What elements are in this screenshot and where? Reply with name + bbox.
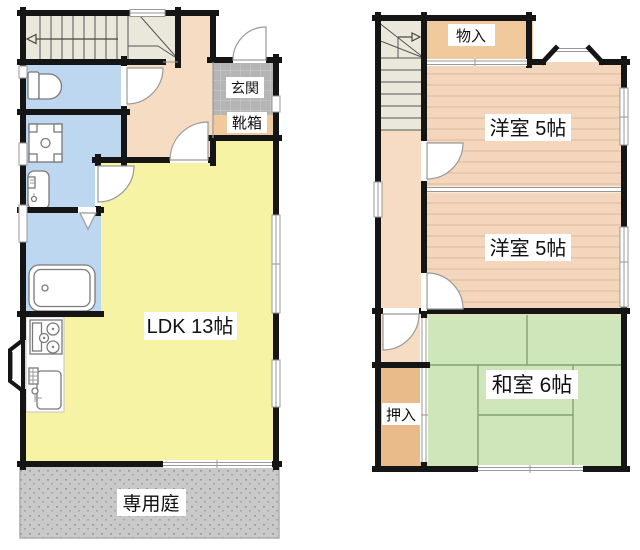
bathroom-window	[19, 205, 27, 242]
ldk-label-text: LDK 13帖	[147, 315, 234, 338]
genkan-side-window	[272, 96, 280, 112]
washroom-window	[19, 143, 27, 165]
floor-plan-image: 玄関 靴箱 LDK 13帖 専用庭	[0, 0, 640, 550]
toilet-fixture	[28, 72, 61, 99]
label-garden: 専用庭	[117, 489, 186, 516]
japanese-room-doorway	[420, 318, 428, 362]
western-upper-label-text: 洋室 5帖	[490, 117, 567, 140]
bathtub-fixture	[29, 265, 95, 311]
label-closet: 押入	[382, 403, 421, 425]
closet-label-text: 押入	[386, 407, 416, 424]
label-genkan: 玄関	[226, 77, 264, 98]
ldk-patio-sliding-window	[163, 460, 272, 468]
toilet-window	[19, 66, 27, 78]
front-door	[233, 27, 266, 63]
storage-sliding-door	[427, 59, 527, 66]
floor-plan-svg: 玄関 靴箱 LDK 13帖 専用庭	[0, 0, 640, 550]
label-ldk: LDK 13帖	[144, 312, 237, 340]
kitchen-counter	[26, 317, 64, 412]
shoebox-label-text: 靴箱	[232, 115, 262, 132]
washbasin-fixture	[28, 171, 49, 209]
western-rooms-partition	[427, 187, 621, 193]
closet-fusuma-doors	[420, 368, 428, 462]
floor-1-plan: 玄関 靴箱 LDK 13帖 専用庭	[10, 10, 280, 539]
stove-fixture	[30, 320, 62, 354]
label-japanese-room: 和室 6帖	[486, 370, 578, 399]
bay-window-1f	[10, 340, 23, 391]
western-lower-label-text: 洋室 5帖	[490, 237, 567, 260]
stairs-floor-2f	[375, 15, 427, 135]
stairs-floor-1f	[20, 10, 178, 62]
japanese-room-sliding-window	[478, 465, 583, 473]
storage-label-text: 物入	[456, 28, 486, 45]
genkan-label-text: 玄関	[231, 80, 259, 96]
garden-label-text: 専用庭	[122, 493, 179, 515]
label-shoebox: 靴箱	[227, 112, 267, 133]
label-western-room-lower: 洋室 5帖	[485, 234, 571, 261]
hallway-upper-floor	[175, 10, 216, 62]
japanese-room-label-text: 和室 6帖	[492, 374, 573, 397]
floor-2-plan: 物入 洋室 5帖 洋室 5帖 和室 6帖 押入	[374, 15, 628, 473]
label-storage: 物入	[448, 24, 495, 46]
washing-machine-pan	[29, 124, 62, 162]
label-western-room-upper: 洋室 5帖	[485, 114, 571, 141]
